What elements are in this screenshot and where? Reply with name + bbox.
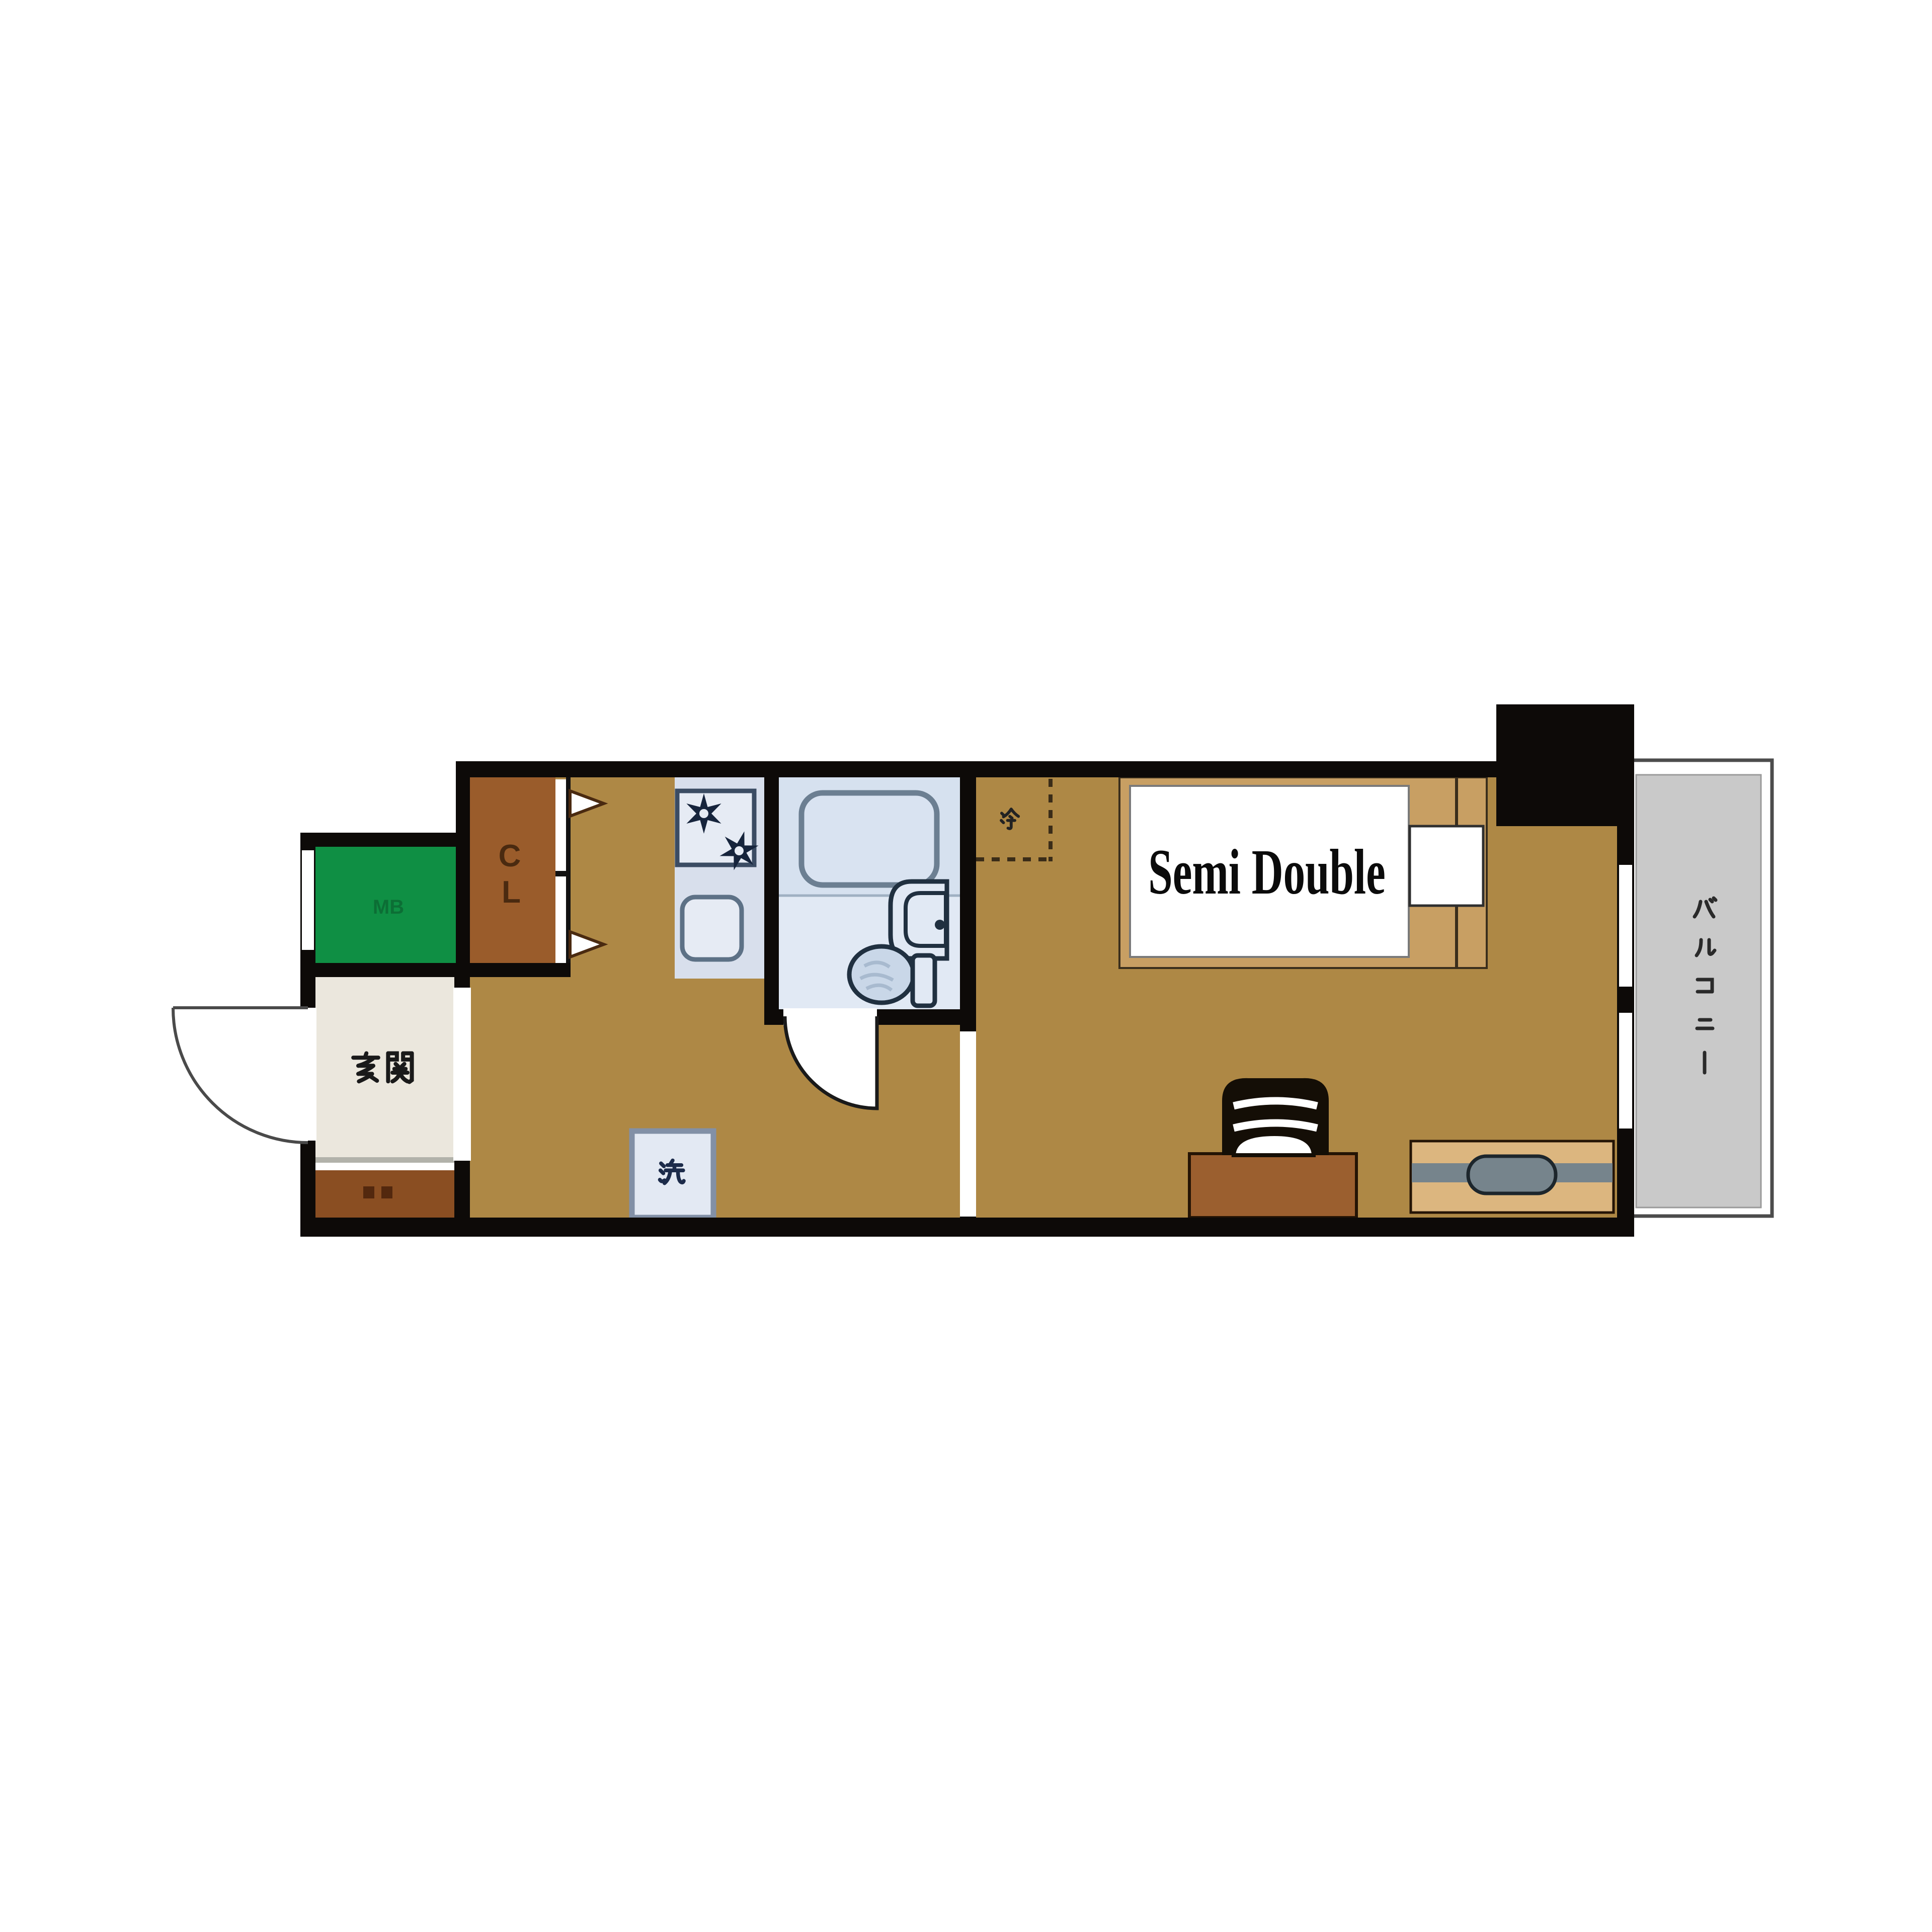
svg-text:Semi Double: Semi Double bbox=[1148, 836, 1385, 908]
svg-text:C: C bbox=[499, 839, 521, 873]
svg-text:L: L bbox=[502, 875, 521, 910]
svg-text:MB: MB bbox=[373, 896, 404, 918]
